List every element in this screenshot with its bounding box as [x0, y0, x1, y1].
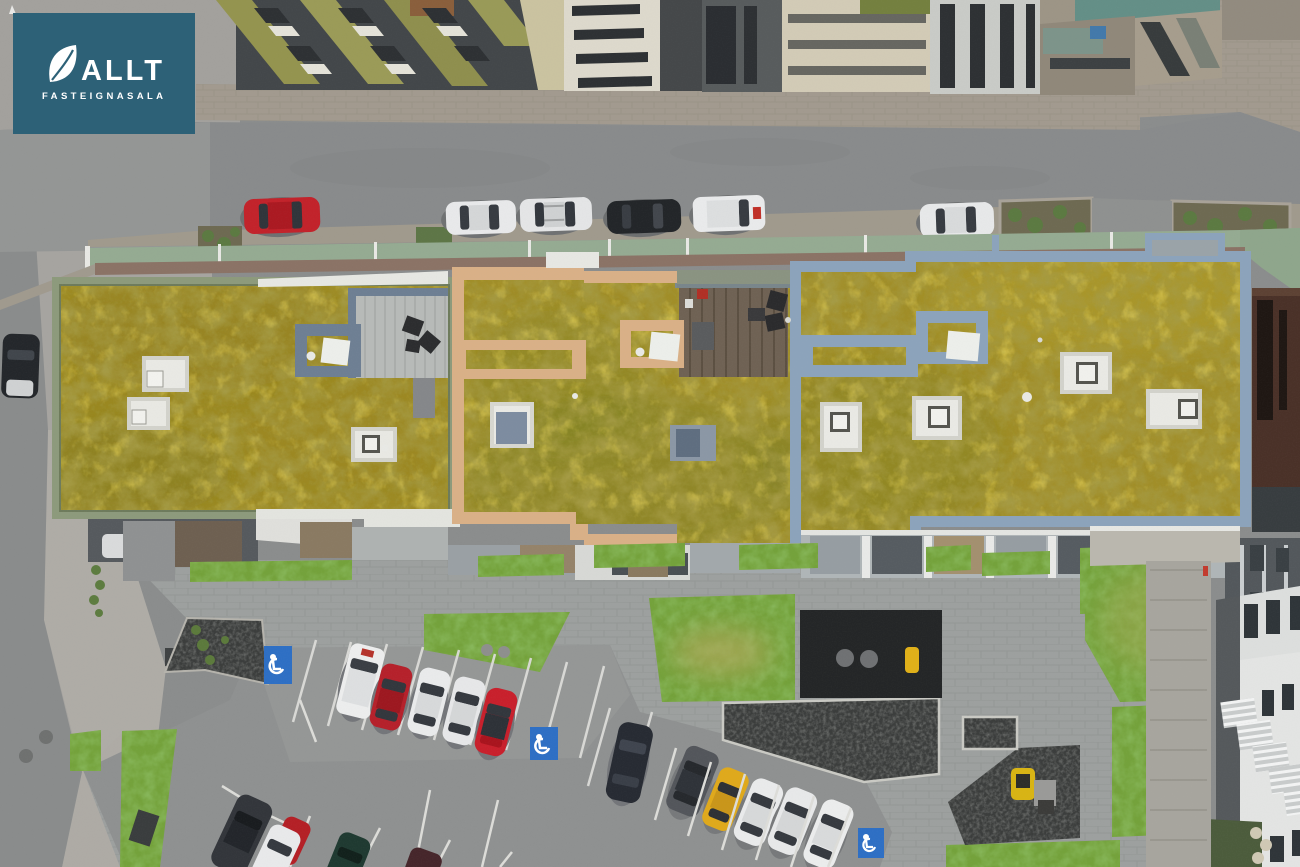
svg-text:ALLT: ALLT: [81, 55, 165, 87]
svg-text:FASTEIGNASALA: FASTEIGNASALA: [42, 91, 166, 102]
